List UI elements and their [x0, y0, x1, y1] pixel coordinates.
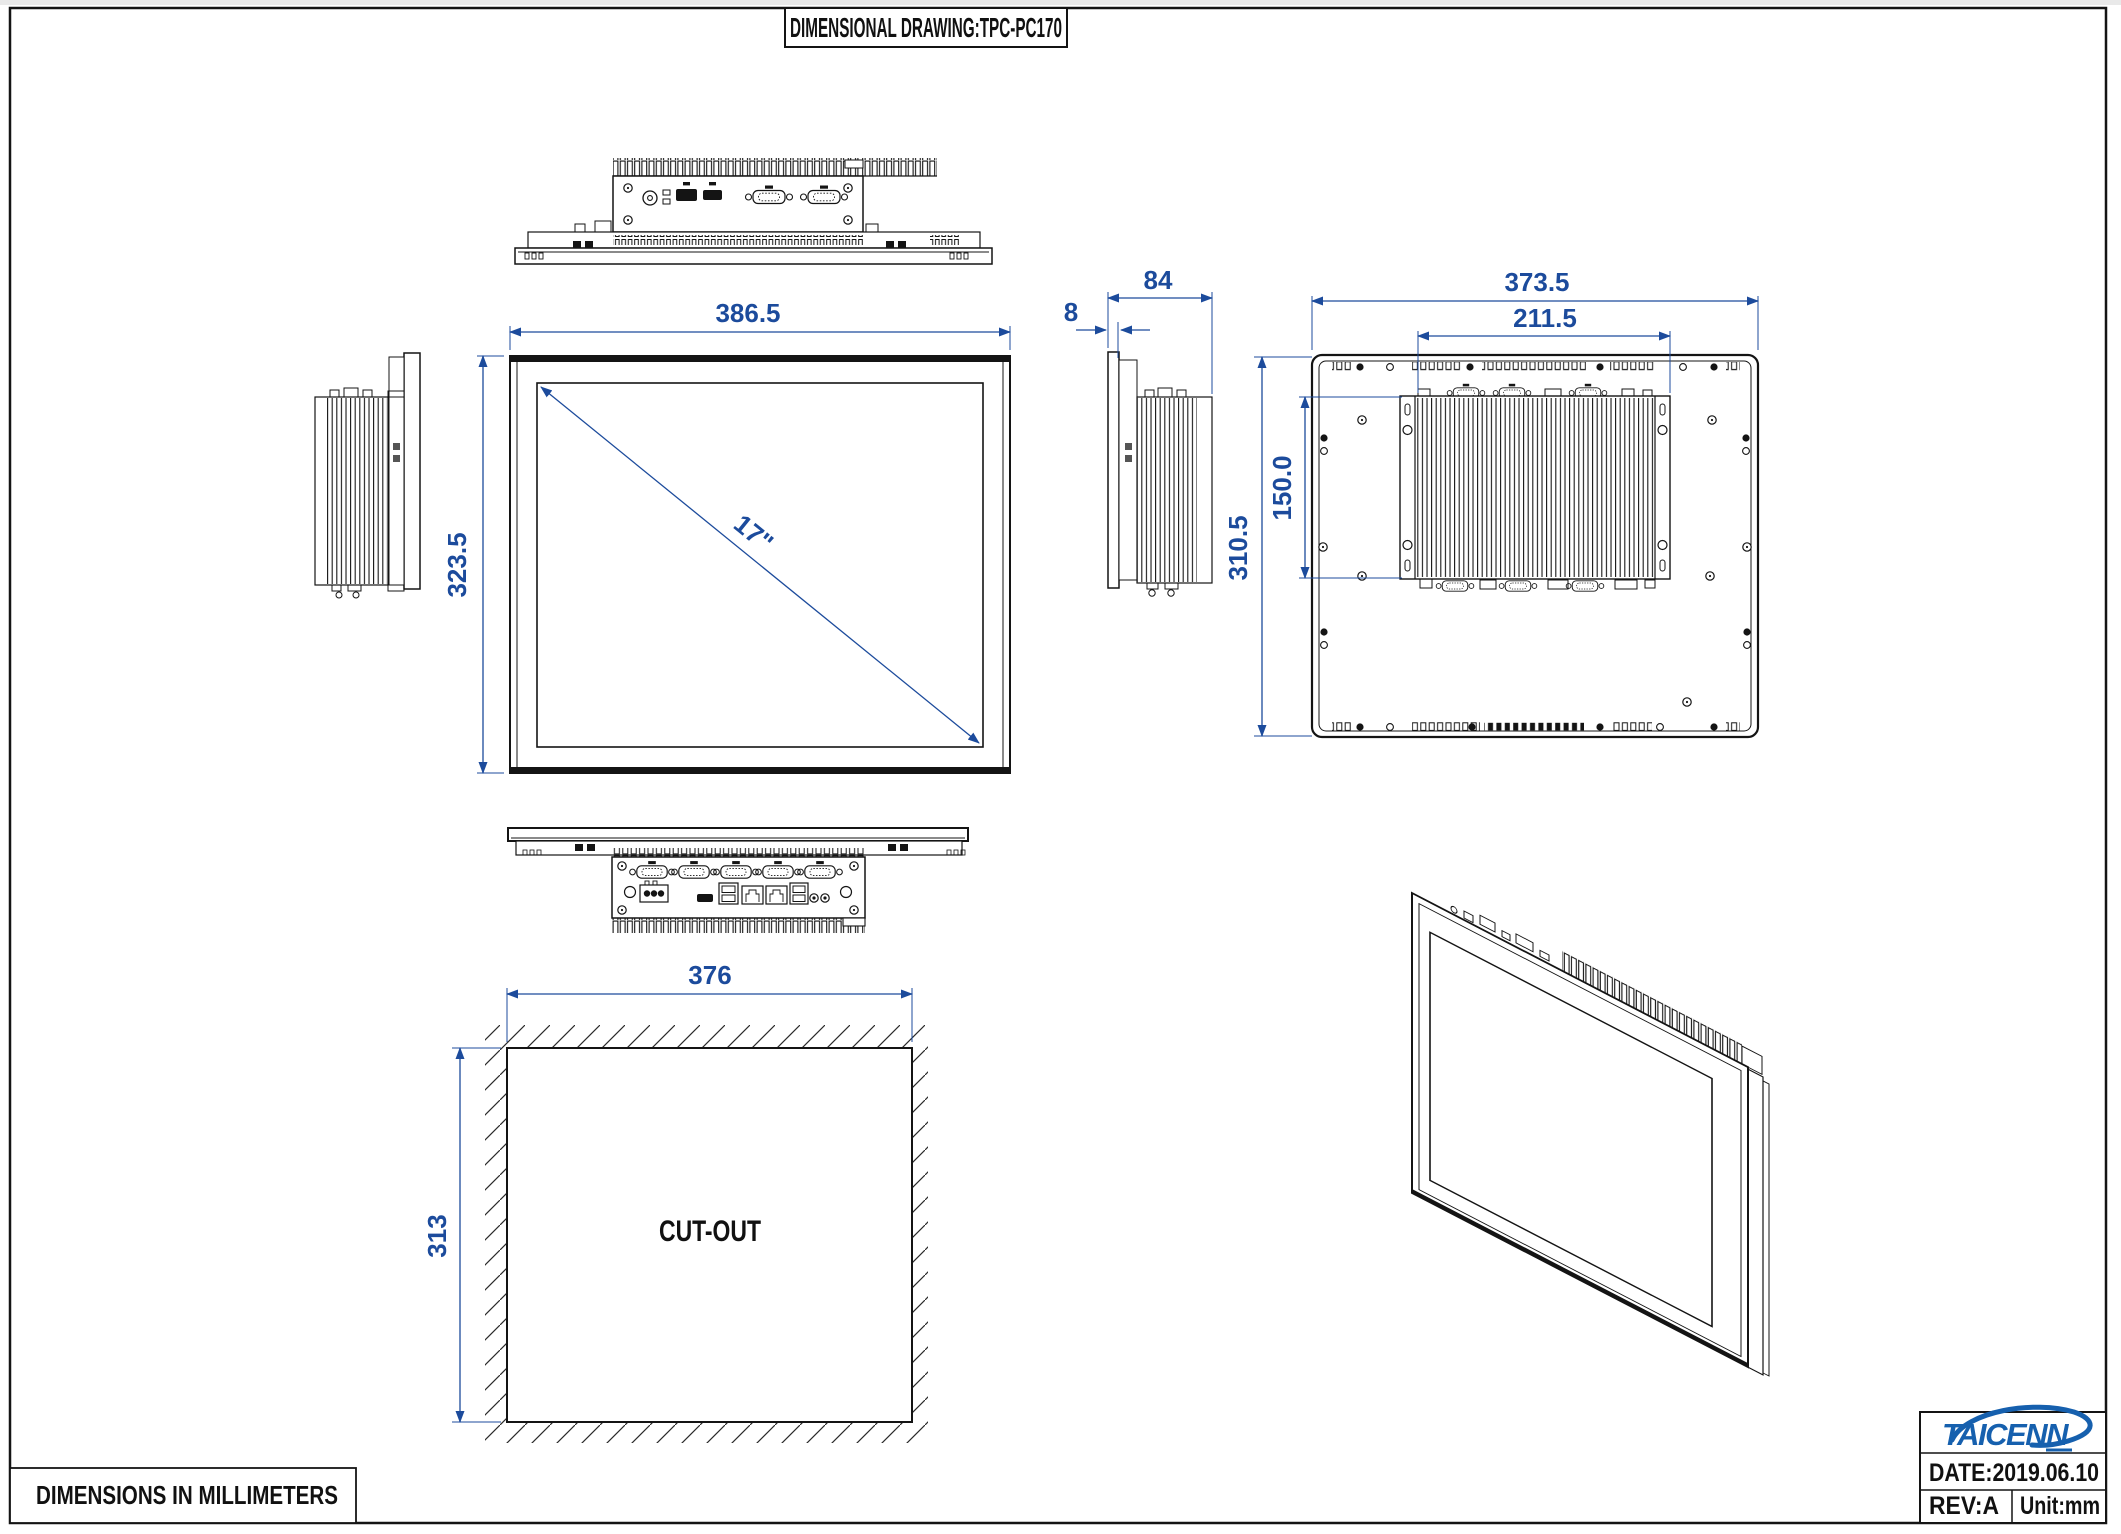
- sheet-border: [10, 8, 2106, 1523]
- heatsink-fins-top: [613, 158, 937, 176]
- side-bezel: [1108, 352, 1119, 588]
- title-block: TAICENN DATE:2019.06.10 REV:A Unit:mm: [1920, 1407, 2106, 1523]
- display-edge-top: [515, 248, 992, 264]
- date-field: DATE:2019.06.10: [1929, 1459, 2099, 1487]
- cutout-width-dimension: 376: [688, 960, 731, 990]
- front-view: 17" 386.5 323.5: [442, 298, 1010, 773]
- screen-top-edge: [0, 0, 2121, 5]
- side-depth-dimension: 84: [1144, 265, 1173, 295]
- heatsink-fins-bottom: [612, 918, 865, 933]
- rear-height-dimension: 310.5: [1223, 515, 1253, 580]
- side-panel-front: [404, 353, 420, 589]
- revision-field: REV:A: [1929, 1492, 1999, 1520]
- front-height-dimension: 323.5: [442, 532, 472, 597]
- rear-mount-height-dimension: 150.0: [1267, 455, 1297, 520]
- unit-field: Unit:mm: [2020, 1492, 2100, 1520]
- hdmi-port-icon: [697, 894, 713, 902]
- footer-note-box: DIMENSIONS IN MILLIMETERS: [10, 1468, 356, 1523]
- units-note: DIMENSIONS IN MILLIMETERS: [36, 1480, 338, 1510]
- cutout-view: CUT-OUT 376 313: [422, 960, 928, 1443]
- rear-mount-width-dimension: 211.5: [1513, 303, 1577, 333]
- front-width-dimension: 386.5: [715, 298, 780, 328]
- title-box: DIMENSIONAL DRAWING:TPC-PC170: [785, 8, 1067, 47]
- cutout-label: CUT-OUT: [659, 1215, 761, 1248]
- left-side-view: [315, 353, 420, 598]
- cutout-height-dimension: 313: [422, 1214, 452, 1257]
- display-edge-bottom: [508, 828, 968, 841]
- drawing-title: DIMENSIONAL DRAWING:TPC-PC170: [790, 12, 1062, 43]
- dimensional-drawing-canvas: DIMENSIONAL DRAWING:TPC-PC170: [0, 0, 2121, 1534]
- drawing-sheet: DIMENSIONAL DRAWING:TPC-PC170: [0, 0, 2121, 1534]
- rear-width-dimension: 373.5: [1504, 267, 1569, 297]
- bezel-thickness-dimension: 8: [1064, 297, 1078, 327]
